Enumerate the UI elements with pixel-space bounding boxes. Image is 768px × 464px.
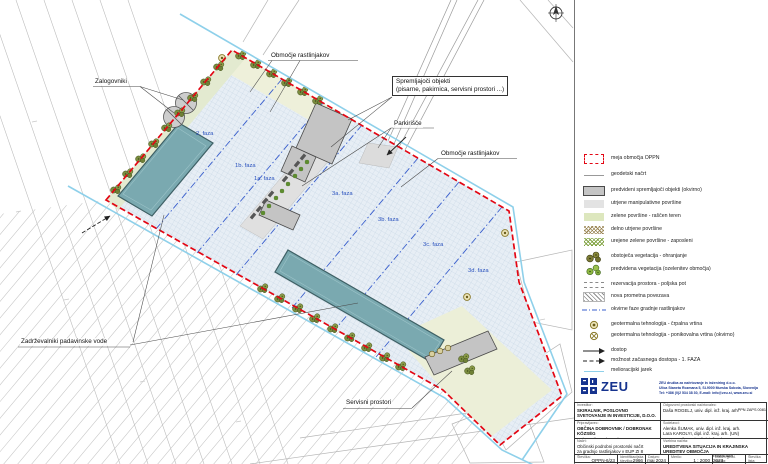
- green-swatch: [582, 213, 606, 221]
- sheet-number-cell: Številka lista:: [746, 455, 768, 464]
- label-storage-tanks: Zalogovniki: [94, 78, 128, 86]
- legend-item-existing-vegetation: obstoječa vegetacija - ohranjanje: [582, 251, 768, 263]
- zeu-logo-text: ZEU: [601, 379, 629, 394]
- title-block: Investitor: SKIRALNIK, POSLOVNO SVETOVAN…: [574, 402, 767, 463]
- phase-label-3a: 3a. faza: [332, 191, 353, 197]
- sheet-content-cell: Vsebina načrta: UREDITVENA SITUACIJA IN …: [661, 439, 768, 455]
- company-info-line3: Tel: +386 (0)2 534 38 30, E-mail: info@z…: [659, 391, 766, 396]
- investor-cell: Investitor: SKIRALNIK, POSLOVNO SVETOVAN…: [575, 403, 661, 421]
- planned-vegetation-icon: [582, 264, 606, 276]
- legend-item-paved: utrjene manipulativne površine: [582, 198, 768, 210]
- existing-vegetation-icon: [582, 251, 606, 263]
- paved-swatch: [582, 200, 606, 208]
- plan-title-cell: Načrt: Občinski podrobni prostorski načr…: [575, 439, 661, 455]
- legend-item-buildings: predvideni spremljajoči objekti (okvirno…: [582, 185, 768, 197]
- number-cell: Številka: OPPN-6/23: [575, 455, 618, 464]
- zeu-logo-icon: [581, 378, 597, 394]
- survey-date-cell: Datum geod. načrta: november 2023: [713, 455, 746, 464]
- label-parking: Parkirišče: [393, 120, 423, 128]
- designer-license-number: PPN ZAPS 0081: [738, 408, 766, 412]
- semipaved-swatch: [582, 226, 606, 234]
- legend-item-new-road: nova prometna povezava: [582, 291, 768, 303]
- phase-label-2: 2. faza: [196, 131, 213, 137]
- oppn-boundary-swatch: [582, 154, 606, 164]
- geodetic-swatch: [582, 175, 606, 176]
- legend-item-green-employees: urejene zelene površine - zaposleni: [582, 236, 768, 248]
- label-greenhouse-area-right: Območje rastlinjakov: [440, 150, 500, 158]
- phase-label-1b: 1b. faza: [235, 163, 256, 169]
- collaborators-cell: Sodelavci: Alenka ŠUMAK, univ. dipl. inž…: [661, 421, 768, 439]
- company-info: ZEU družba za načrtovanje in inženiring …: [659, 381, 766, 396]
- new-road-swatch: [582, 292, 606, 302]
- scale-cell: Merilo: 1 : 2000: [669, 455, 713, 464]
- date-cell: Datum: maj 2024: [646, 455, 669, 464]
- legend-item-ditch: melioracijski jarek: [582, 365, 768, 377]
- label-service-rooms: Servisni prostori: [345, 399, 392, 407]
- panel-divider: [574, 0, 575, 464]
- north-arrow-icon: [548, 4, 564, 22]
- buildings-swatch: [582, 186, 606, 196]
- reservation-swatch: [582, 282, 606, 288]
- legend-item-green: zelene površine - raščen teren: [582, 211, 768, 223]
- label-greenhouse-area-top: Območje rastlinjakov: [270, 52, 330, 60]
- inject-well-icon: [582, 330, 606, 342]
- legend-item-inject-well: geotermalna tehnologija - ponikovalna vr…: [582, 330, 768, 342]
- zeu-brand: ZEU: [581, 378, 629, 394]
- ditch-swatch: [582, 371, 606, 372]
- phase-label-3c: 3c. faza: [423, 242, 443, 248]
- legend-item-planned-vegetation: predvidena vegetacija (ozelenitev območj…: [582, 264, 768, 276]
- site-plan-drawing: [0, 0, 574, 464]
- label-accompanying-buildings: Spremljajoči objekti (pisarne, pakirnica…: [392, 76, 508, 96]
- legend-item-oppn-boundary: meja območja OPPN: [582, 153, 768, 165]
- legend-item-phases: okvirne faze gradnje rastlinjakov: [582, 304, 768, 316]
- phase-label-1a: 1a. faza: [254, 176, 275, 182]
- designer-cell: Odgovorni prostorski načrtovalec: Daša R…: [661, 403, 768, 421]
- legend-item-semipaved: delno utrjene površine: [582, 224, 768, 236]
- phases-swatch: [582, 307, 606, 313]
- label-accompanying-line2: (pisarne, pakirnica, servisni prostori .…: [396, 86, 504, 94]
- phase-label-3b: 3b. faza: [378, 217, 399, 223]
- site-plan-map: Zalogovniki Območje rastlinjakov Spremlj…: [0, 0, 574, 464]
- preparer-cell: Pripravljavec: OBČINA DOBROVNIK / DOBRON…: [575, 421, 661, 439]
- label-accompanying-line1: Spremljajoči objekti: [396, 78, 504, 86]
- legend-item-reservation: rezervacija prostora - poljska pot: [582, 279, 768, 291]
- label-retention-basins: Zadrževalniki padavinske vode: [20, 338, 108, 346]
- green-employees-swatch: [582, 238, 606, 246]
- phase-label-3d: 3d. faza: [468, 268, 489, 274]
- legend-item-geodetic: geodetski načrt: [582, 169, 768, 181]
- plan-sheet: Zalogovniki Območje rastlinjakov Spremlj…: [0, 0, 768, 464]
- id-number-cell: Identifikacijska številka: 2966: [618, 455, 646, 464]
